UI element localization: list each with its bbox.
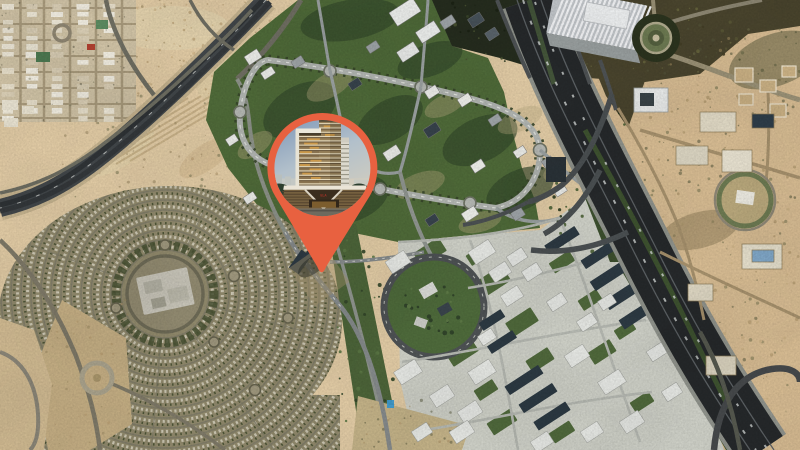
svg-text:ELA: ELA xyxy=(320,194,327,198)
